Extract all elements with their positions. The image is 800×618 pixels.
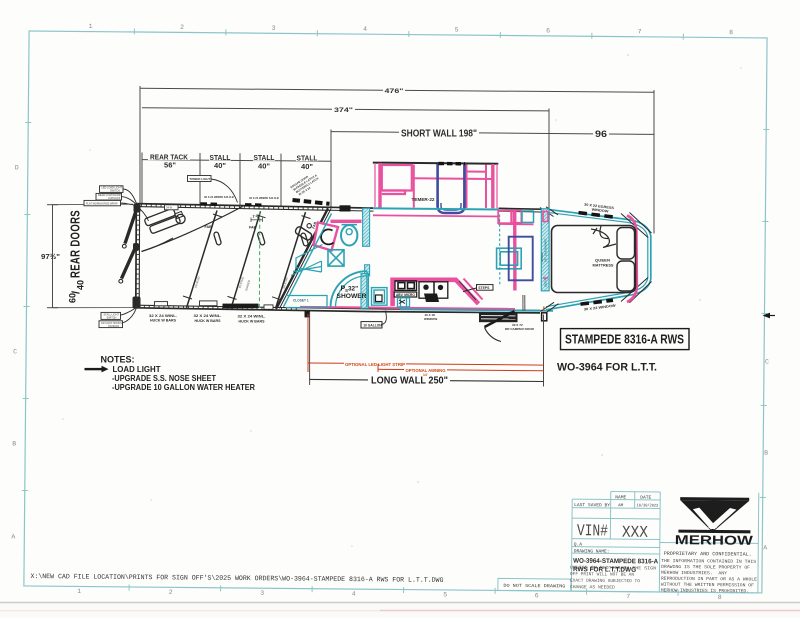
svg-text:WINDOW: WINDOW <box>424 317 437 321</box>
svg-text:TEMER-22: TEMER-22 <box>412 197 436 202</box>
svg-text:EXACT DRAWING SUBJECTED TO: EXACT DRAWING SUBJECTED TO <box>570 578 640 585</box>
svg-text:56": 56" <box>164 163 176 170</box>
svg-text:C: C <box>13 348 17 355</box>
svg-text:7: 7 <box>626 593 630 600</box>
svg-text:STALL: STALL <box>297 156 319 163</box>
svg-text:MERHOW: MERHOW <box>675 532 754 548</box>
svg-text:34 W: 34 W <box>166 206 173 210</box>
svg-text:97½": 97½" <box>41 252 60 261</box>
svg-text:QUEEN: QUEEN <box>595 259 611 263</box>
svg-text:5: 5 <box>455 27 459 34</box>
svg-text:MATTRESS: MATTRESS <box>593 264 615 268</box>
svg-text:40": 40" <box>214 163 226 170</box>
svg-text:Q.A: Q.A <box>574 541 583 547</box>
svg-text:DATE: DATE <box>640 495 651 501</box>
svg-text:CLOSET 1: CLOSET 1 <box>293 299 309 303</box>
svg-text:3: 3 <box>272 25 276 32</box>
svg-text:40: 40 <box>76 280 86 290</box>
svg-text:D: D <box>15 164 19 171</box>
svg-text:LAST SAVED BY: LAST SAVED BY <box>574 502 610 508</box>
svg-text:/: / <box>71 291 83 294</box>
svg-text:LONG WALL 250": LONG WALL 250" <box>371 376 448 387</box>
svg-text:SHOWER: SHOWER <box>337 293 367 300</box>
svg-text:2: 2 <box>169 589 173 596</box>
svg-text:7: 7 <box>638 28 642 35</box>
svg-text:FAB: FAB <box>249 226 257 230</box>
svg-text:STALL: STALL <box>254 155 276 162</box>
svg-text:-UPGRADE 10 GALLON WATER HEATE: -UPGRADE 10 GALLON WATER HEATER <box>112 383 255 392</box>
svg-text:A: A <box>11 533 15 540</box>
svg-text:3: 3 <box>260 590 264 597</box>
svg-text:DRAWING NAME:: DRAWING NAME: <box>574 548 610 554</box>
svg-text:XXX: XXX <box>622 523 648 542</box>
svg-text:C: C <box>765 358 769 365</box>
svg-text:476": 476" <box>385 88 404 95</box>
svg-text:-UPGRADE S.S. NOSE SHEET: -UPGRADE S.S. NOSE SHEET <box>112 374 216 383</box>
svg-text:4: 4 <box>352 591 356 598</box>
svg-text:NOTES:: NOTES: <box>101 355 135 365</box>
svg-text:WITHOUT THE WRITTEN PERMISSION: WITHOUT THE WRITTEN PERMISSION OF <box>661 582 754 589</box>
svg-text:SHORT WALL 198": SHORT WALL 198" <box>401 128 477 139</box>
svg-text:RWS FOR L.T.T.DWG: RWS FOR L.T.T.DWG <box>573 566 636 574</box>
svg-text:1'-6": 1'-6" <box>253 215 261 219</box>
svg-text:10/30/2023: 10/30/2023 <box>637 503 659 508</box>
svg-text:DINER: DINER <box>540 252 544 262</box>
svg-text:REPRODUCTION IN PART OR AS A W: REPRODUCTION IN PART OR AS A WHOLE <box>661 576 757 583</box>
svg-text:4: 4 <box>363 26 367 33</box>
svg-text:6: 6 <box>535 592 539 599</box>
svg-text:NAME: NAME <box>615 494 626 500</box>
svg-text:32 X 24 WNDW S.R.O.B: 32 X 24 WNDW S.R.O.B <box>204 195 234 199</box>
svg-text:FLAT WORKHORSE WRAP: FLAT WORKHORSE WRAP <box>86 202 118 205</box>
svg-text:DRAWING IS THE SOLE PROPERTY O: DRAWING IS THE SOLE PROPERTY OF <box>661 564 750 571</box>
svg-text:REAR TACK: REAR TACK <box>150 154 188 161</box>
svg-text:10 GALLON: 10 GALLON <box>363 323 382 327</box>
svg-text:MERHOW INDUSTRIES IS PROHIBITE: MERHOW INDUSTRIES IS PROHIBITED. <box>661 587 749 594</box>
svg-text:WO-3964 FOR L.T.T.: WO-3964 FOR L.T.T. <box>557 362 657 374</box>
svg-text:ABV. MICRO: ABV. MICRO <box>396 293 415 297</box>
svg-text:32 X 24 WINL.: 32 X 24 WINL. <box>238 315 266 319</box>
svg-text:1: 1 <box>77 588 81 595</box>
svg-text:CHANGE AS NEEDED: CHANGE AS NEEDED <box>570 584 615 590</box>
svg-text:PS32": PS32" <box>341 286 359 294</box>
svg-text:WO-3964-STAMPEDE 8316-A: WO-3964-STAMPEDE 8316-A <box>573 558 658 566</box>
svg-text:374": 374" <box>334 107 353 114</box>
svg-text:SWITCH: SWITCH <box>107 316 117 319</box>
svg-text:DO NOT SCALE DRAWING: DO NOT SCALE DRAWING <box>503 583 565 590</box>
svg-text:FAB: FAB <box>205 225 213 229</box>
svg-text:96: 96 <box>595 129 607 139</box>
svg-text:5: 5 <box>443 591 447 598</box>
svg-text:32 X 24 WINL.: 32 X 24 WINL. <box>149 314 177 318</box>
svg-text:HUCK W BARS: HUCK W BARS <box>150 319 177 323</box>
svg-text:HUCK W BARS: HUCK W BARS <box>195 319 222 323</box>
svg-text:AM: AM <box>618 504 624 508</box>
svg-text:DR CAMPER DOOR: DR CAMPER DOOR <box>505 327 535 331</box>
svg-text:A: A <box>763 544 767 551</box>
svg-text:REAR DOORS: REAR DOORS <box>69 210 83 278</box>
svg-text:THE INFORMATION CONTAINED IN T: THE INFORMATION CONTAINED IN THIS <box>661 558 756 565</box>
svg-text:50" JACKKNIFE: 50" JACKKNIFE <box>544 239 548 262</box>
svg-text:STEPS: STEPS <box>478 286 490 290</box>
svg-text:8: 8 <box>718 594 722 601</box>
svg-text:ON BACK: ON BACK <box>108 325 120 328</box>
svg-text:40": 40" <box>258 163 270 170</box>
svg-text:VIN#: VIN# <box>577 521 608 540</box>
svg-text:6: 6 <box>546 27 550 34</box>
svg-text:SOFA: SOFA <box>544 278 548 287</box>
svg-text:OPTIONAL LED LIGHT STRIP: OPTIONAL LED LIGHT STRIP <box>345 362 405 367</box>
svg-text:2: 2 <box>180 24 184 31</box>
svg-text:32 X 24 WNDW S.R.O.B: 32 X 24 WNDW S.R.O.B <box>249 196 279 200</box>
svg-text:PROPRIETARY AND CONFIDENTIAL.: PROPRIETARY AND CONFIDENTIAL. <box>664 551 752 558</box>
svg-text:LOAD LIGHT: LOAD LIGHT <box>113 365 161 374</box>
svg-text:STAMPEDE 8316-A RWS: STAMPEDE 8316-A RWS <box>565 331 684 346</box>
svg-text:8: 8 <box>729 29 733 36</box>
svg-text:CUP/JACK: CUP/JACK <box>108 197 121 200</box>
svg-text:TOWER LIGHT: TOWER LIGHT <box>189 177 210 181</box>
svg-text:40": 40" <box>301 164 313 171</box>
svg-text:B: B <box>12 440 16 447</box>
svg-text:HUCK W BARS: HUCK W BARS <box>239 319 266 323</box>
svg-text:STALL: STALL <box>210 155 232 162</box>
svg-text:1: 1 <box>89 23 93 30</box>
svg-text:SWITCH: SWITCH <box>110 190 120 193</box>
svg-text:MERHOW INDUSTRIES. ANY: MERHOW INDUSTRIES. ANY <box>661 570 727 577</box>
svg-text:B: B <box>764 449 768 456</box>
svg-text:32 X 24 WINL.: 32 X 24 WINL. <box>194 314 222 318</box>
